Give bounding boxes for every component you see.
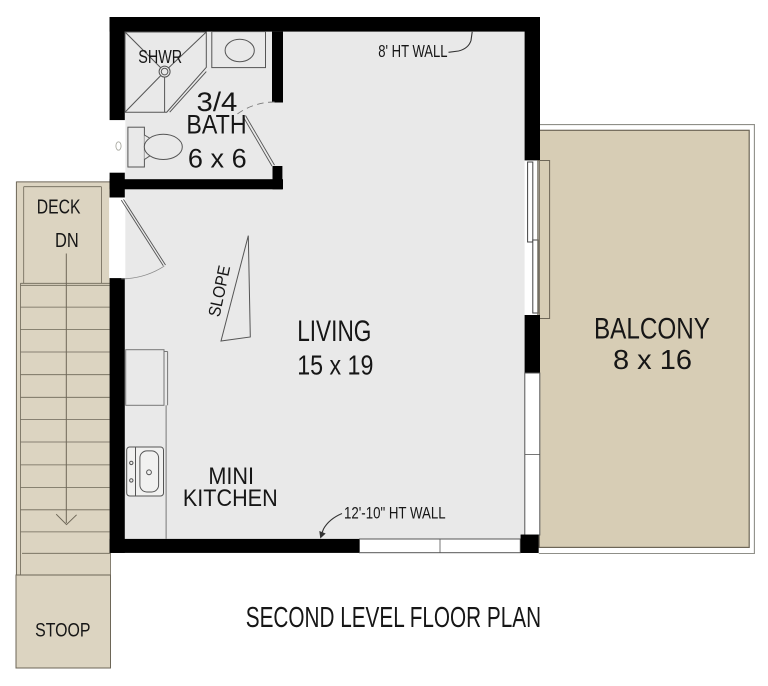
svg-text:8 x 16: 8 x 16 — [613, 344, 692, 375]
svg-text:LIVING: LIVING — [297, 315, 371, 348]
svg-text:BALCONY: BALCONY — [594, 313, 710, 346]
svg-text:6 x 6: 6 x 6 — [188, 143, 247, 173]
svg-text:8' HT WALL: 8' HT WALL — [378, 41, 447, 61]
svg-text:12'-10" HT WALL: 12'-10" HT WALL — [344, 504, 446, 523]
svg-text:SHWR: SHWR — [138, 47, 182, 67]
svg-text:15 x 19: 15 x 19 — [297, 349, 373, 380]
svg-text:SECOND LEVEL FLOOR PLAN: SECOND LEVEL FLOOR PLAN — [246, 602, 541, 634]
svg-text:STOOP: STOOP — [35, 621, 90, 642]
svg-text:DECK: DECK — [37, 196, 81, 218]
svg-text:DN: DN — [55, 230, 79, 252]
svg-text:BATH: BATH — [186, 110, 246, 140]
svg-text:KITCHEN: KITCHEN — [183, 485, 278, 512]
